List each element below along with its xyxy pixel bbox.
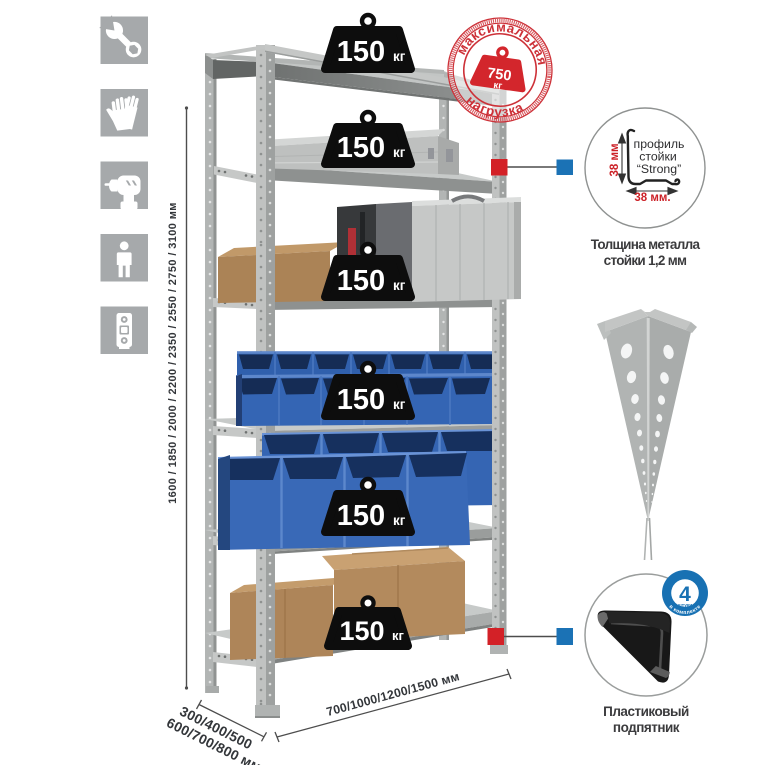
svg-text:150: 150 bbox=[337, 384, 385, 416]
svg-text:“Strong”: “Strong” bbox=[637, 162, 681, 176]
svg-text:1600 / 1850 / 2000 / 2200 / 23: 1600 / 1850 / 2000 / 2200 / 2350 / 2550 … bbox=[167, 202, 179, 504]
svg-text:38 мм.: 38 мм. bbox=[634, 192, 670, 204]
svg-text:150: 150 bbox=[337, 500, 385, 532]
svg-text:700/1000/1200/1500 мм: 700/1000/1200/1500 мм bbox=[325, 669, 461, 719]
svg-text:подпятник: подпятник bbox=[613, 720, 680, 735]
svg-text:150: 150 bbox=[337, 265, 385, 297]
svg-text:штуки: штуки bbox=[678, 604, 693, 609]
svg-text:Толщина металла: Толщина металла bbox=[591, 237, 701, 252]
svg-text:кг: кг bbox=[393, 145, 406, 160]
svg-text:кг: кг bbox=[393, 278, 406, 293]
svg-text:кг: кг bbox=[393, 49, 406, 64]
svg-text:150: 150 bbox=[339, 616, 384, 646]
svg-text:150: 150 bbox=[337, 132, 385, 164]
svg-text:стойки 1,2 мм: стойки 1,2 мм bbox=[604, 253, 687, 268]
svg-text:Пластиковый: Пластиковый bbox=[603, 704, 689, 719]
svg-text:кг: кг bbox=[393, 397, 406, 412]
svg-text:кг: кг bbox=[392, 628, 405, 643]
svg-text:кг: кг bbox=[393, 513, 406, 528]
svg-text:кг: кг bbox=[493, 80, 503, 92]
svg-text:150: 150 bbox=[337, 36, 385, 68]
svg-text:38 мм: 38 мм bbox=[609, 143, 621, 176]
